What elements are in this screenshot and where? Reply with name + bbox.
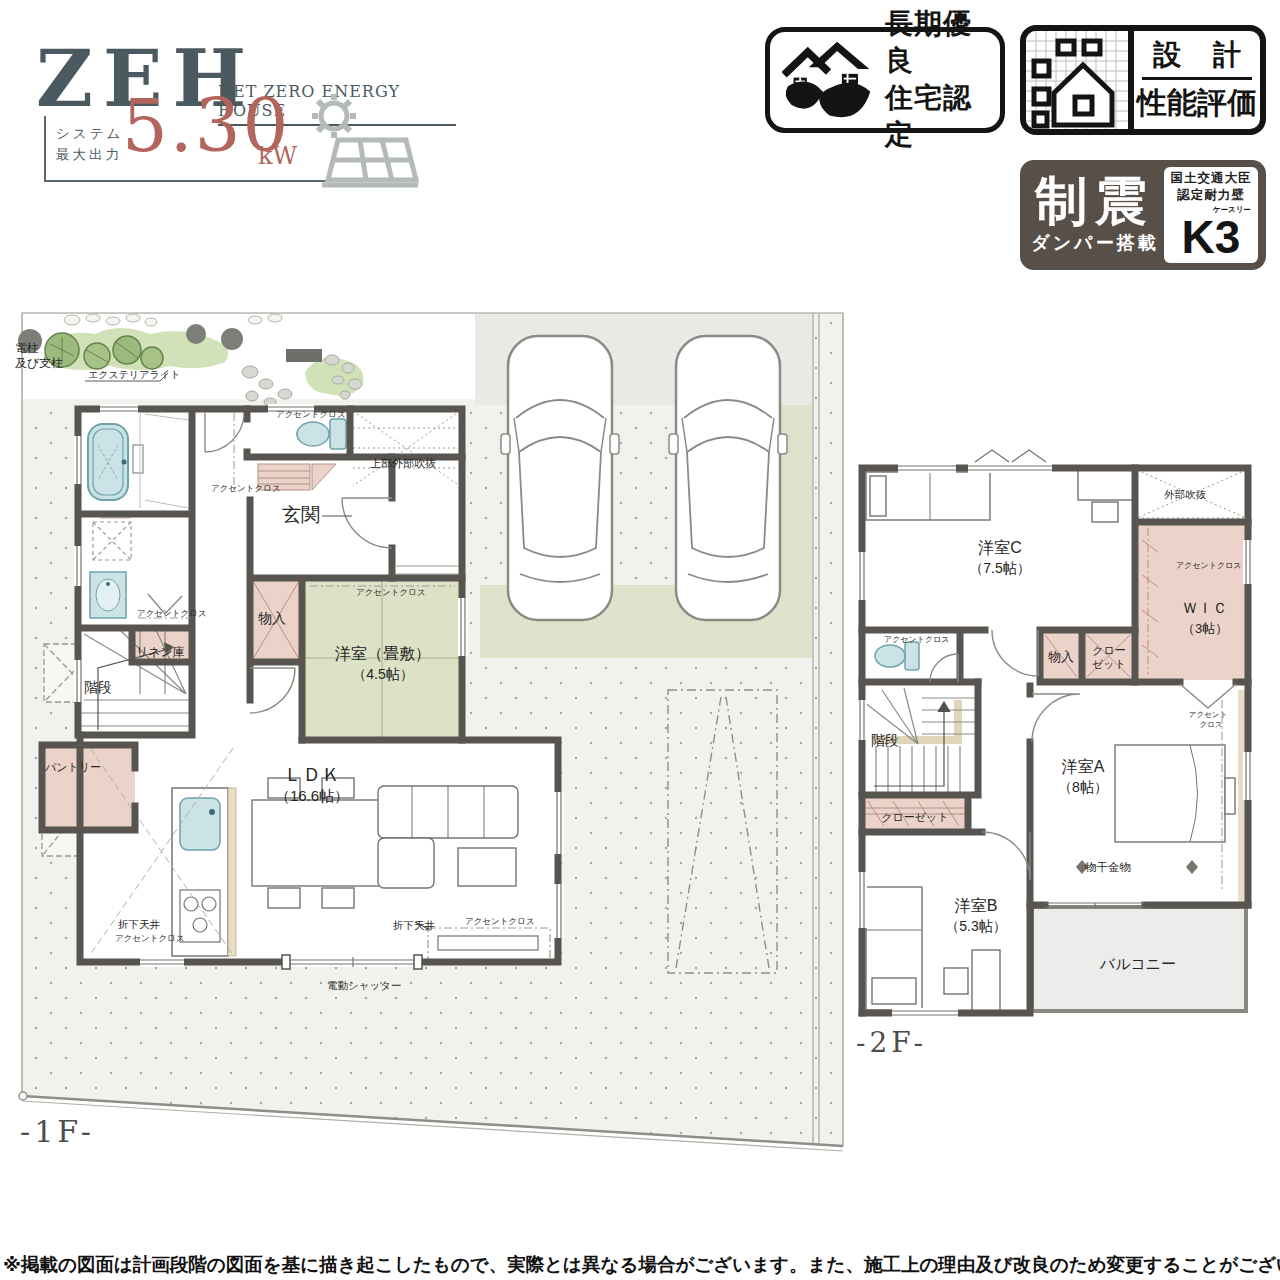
label-accent-cloth-tatami: アクセントクロス [356,587,426,597]
label-closet-2f-line1: クロー [1092,644,1126,656]
bed-c [866,472,990,520]
label-yoshitsu-b: 洋室B [955,897,998,914]
label-accent-kitchen: アクセントクロス [115,933,185,943]
label-monoire-2f: 物入 [1048,649,1074,664]
label-linen: リネン庫 [136,645,185,659]
toilet-2f [875,642,919,670]
label-tatami-size: （4.5帖） [352,666,413,682]
label-dendo-shutter: 電動シャッター [327,979,401,991]
label-yoshitsu-c: 洋室C [978,539,1022,556]
label-kaidan-2f: 階段 [871,732,899,748]
bed-a [1115,745,1235,842]
label-pantry: パントリー [45,761,101,773]
label-balcony: バルコニー [1099,955,1176,972]
label-accent-a-line1: アクセント [1189,710,1227,719]
label-accent-cloth-wash: アクセントクロス [137,608,207,618]
house-2f [857,450,1253,1018]
disclaimer-text: ※掲載の図面は計画段階の図面を基に描き起こしたもので、実際とは異なる場合がござい… [3,1252,1279,1277]
label-accent-wic: アクセントクロス [1176,561,1242,570]
label-accent-cloth-toilet-1f: アクセントクロス [276,409,346,419]
label-wic: ＷＩＣ [1183,599,1228,616]
label-accent-living: アクセントクロス [465,916,535,926]
label-yoshitsu-c-size: （7.5帖） [969,560,1030,576]
label-orishita-kitchen: 折下天井 [118,918,160,930]
kitchen [172,788,236,956]
label-monoire-1f: 物入 [258,610,286,626]
label-kaidan-1f: 階段 [84,679,112,695]
floor2-title: -2F- [856,1026,927,1059]
label-wic-size: （3帖） [1182,621,1228,636]
label-utility-pole-1: 電柱 [15,341,39,355]
pantry-room [42,745,135,830]
label-ldk-size: （16.6帖） [275,787,349,804]
label-accent-a-line2: クロス [1199,720,1222,729]
label-utility-pole-2: 及び支柱 [15,356,63,370]
label-genkan: 玄関 [282,504,320,525]
boundary-pin [19,1092,27,1100]
label-tatami-room: 洋室（畳敷） [335,645,431,662]
label-accent-toilet-2f: アクセントクロス [884,635,950,644]
bathtub [88,424,128,500]
label-closet-2f-lower: クローゼット [881,811,948,823]
label-yoshitsu-a: 洋室A [1062,758,1105,775]
label-upper-outer-void: 上部外部吹抜 [370,457,436,469]
floorplan-canvas: 電柱及び支柱エクステリアライトアクセントクロス上部外部吹抜アクセントクロス玄関物… [0,0,1280,1280]
label-orishita-living: 折下天井 [393,919,435,931]
floor1-title: -1F- [20,1114,95,1149]
label-yoshitsu-a-size: （8帖） [1058,779,1108,795]
label-accent-cloth-hall-1f: アクセントクロス [211,483,281,493]
label-yoshitsu-b-size: （5.3帖） [945,918,1006,934]
label-outer-void-2f: 外部吹抜 [1164,488,1207,500]
label-closet-2f-line2: ゼット [1092,658,1126,670]
toilet-1f [297,419,346,449]
label-monohoshi: 物干金物 [1085,861,1131,873]
label-exterior-light: エクステリアライト [88,369,180,380]
label-ldk: ＬＤＫ [284,764,341,785]
wash-basin [90,572,126,618]
exterior-light-fixture [286,349,322,362]
bed-b [866,887,922,1010]
